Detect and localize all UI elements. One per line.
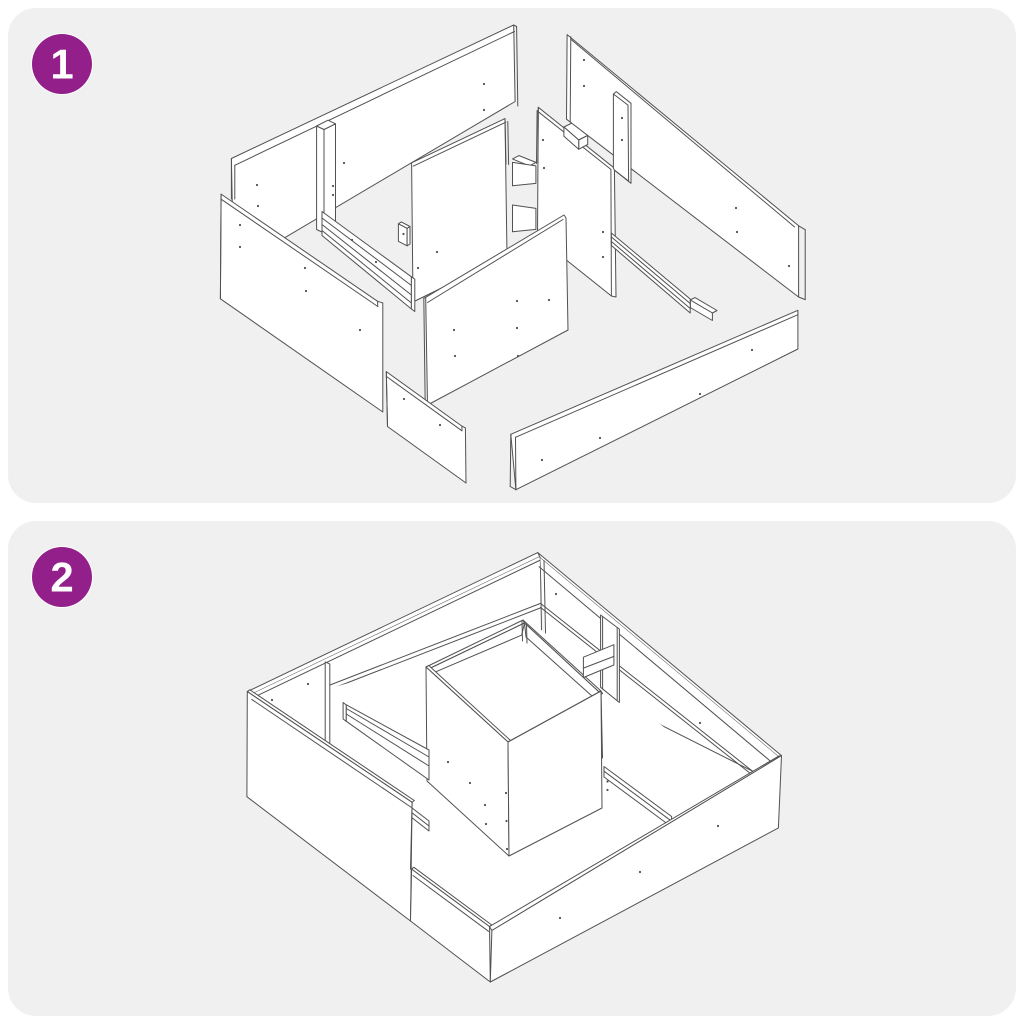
svg-text:2: 2 xyxy=(50,554,73,601)
svg-text:1: 1 xyxy=(50,41,73,88)
